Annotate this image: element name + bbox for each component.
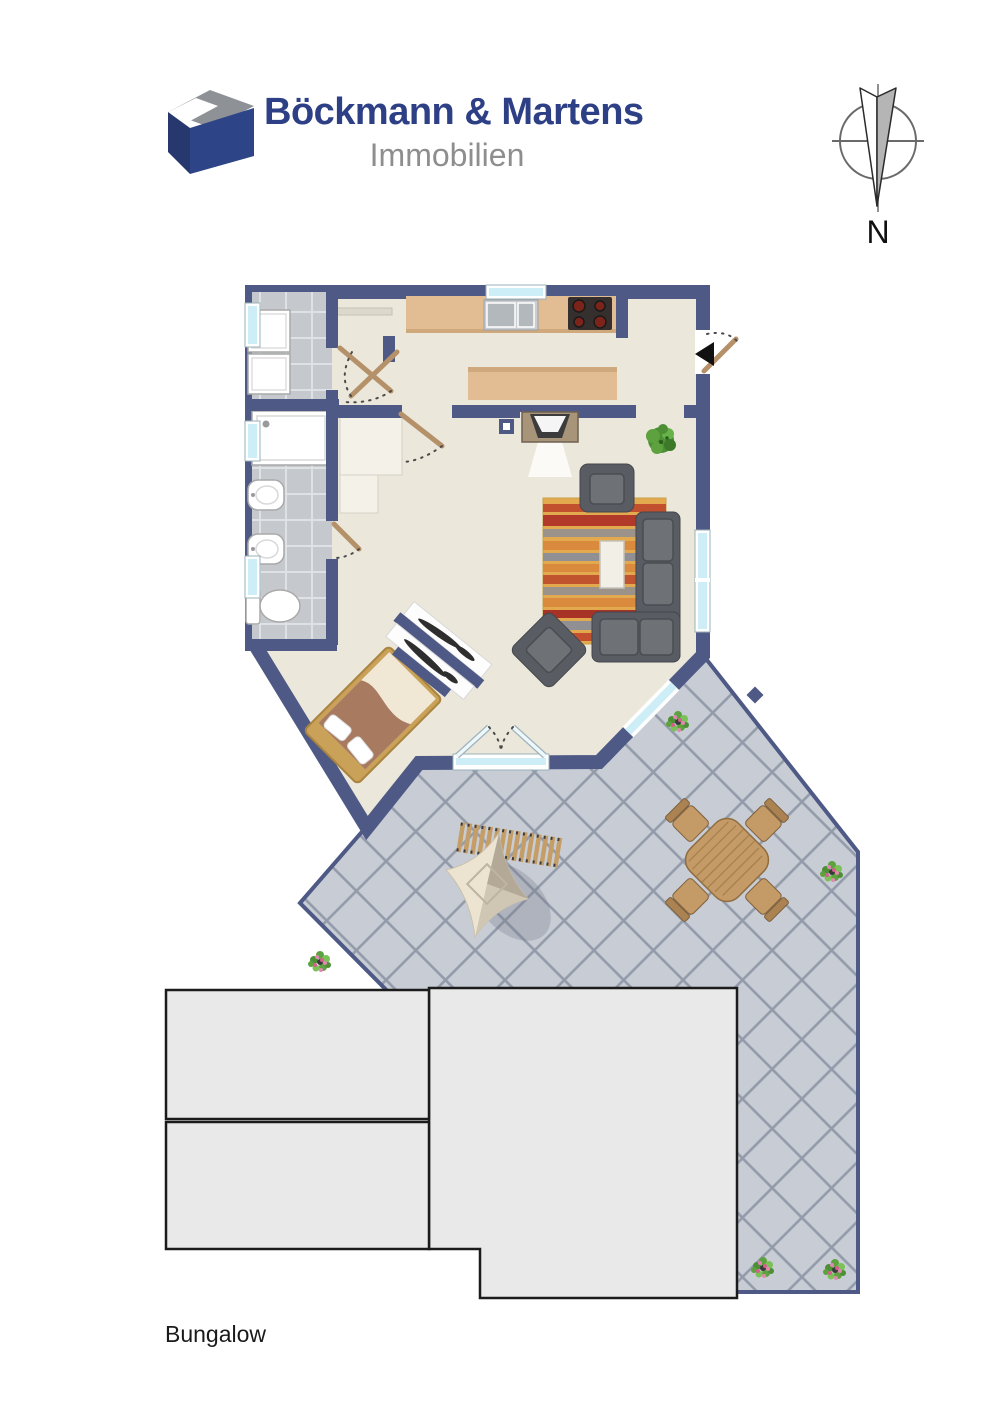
- flower-cluster: [308, 951, 331, 972]
- logo: Böckmann & Martens Immobilien: [168, 90, 644, 174]
- coffee-table: [600, 541, 624, 588]
- fireplace-tv: [522, 412, 578, 442]
- window-living-right: [695, 530, 710, 632]
- floorplan-canvas: Böckmann & Martens Immobilien N: [0, 0, 1000, 1415]
- neighbor-building-bottom: [166, 1122, 429, 1249]
- entrance-door: [695, 330, 737, 374]
- hall-closet: [340, 475, 378, 513]
- logo-cube-icon: [168, 90, 254, 174]
- toilet: [260, 590, 300, 622]
- plan-caption: Bungalow: [165, 1321, 266, 1347]
- window-bath-2: [245, 556, 260, 598]
- shower-drain: [263, 421, 270, 428]
- compass: N: [832, 84, 924, 250]
- window-kitchen: [486, 285, 546, 299]
- hall-shelf: [336, 308, 392, 315]
- neighbor-building-top: [166, 990, 429, 1119]
- neighbor-building-large: [429, 988, 737, 1298]
- neighbor-buildings: [166, 988, 737, 1298]
- boundary-post: [747, 687, 764, 704]
- north-label: N: [866, 214, 889, 250]
- compass-needle-right: [877, 88, 896, 206]
- dryer: [248, 354, 290, 394]
- window-bath-1: [245, 421, 260, 461]
- compass-needle-left: [860, 88, 877, 206]
- hall-closet: [340, 415, 402, 475]
- shower: [252, 411, 330, 465]
- brand-subtitle: Immobilien: [370, 137, 525, 173]
- window-utility: [245, 303, 260, 347]
- brand-title: Böckmann & Martens: [264, 91, 644, 133]
